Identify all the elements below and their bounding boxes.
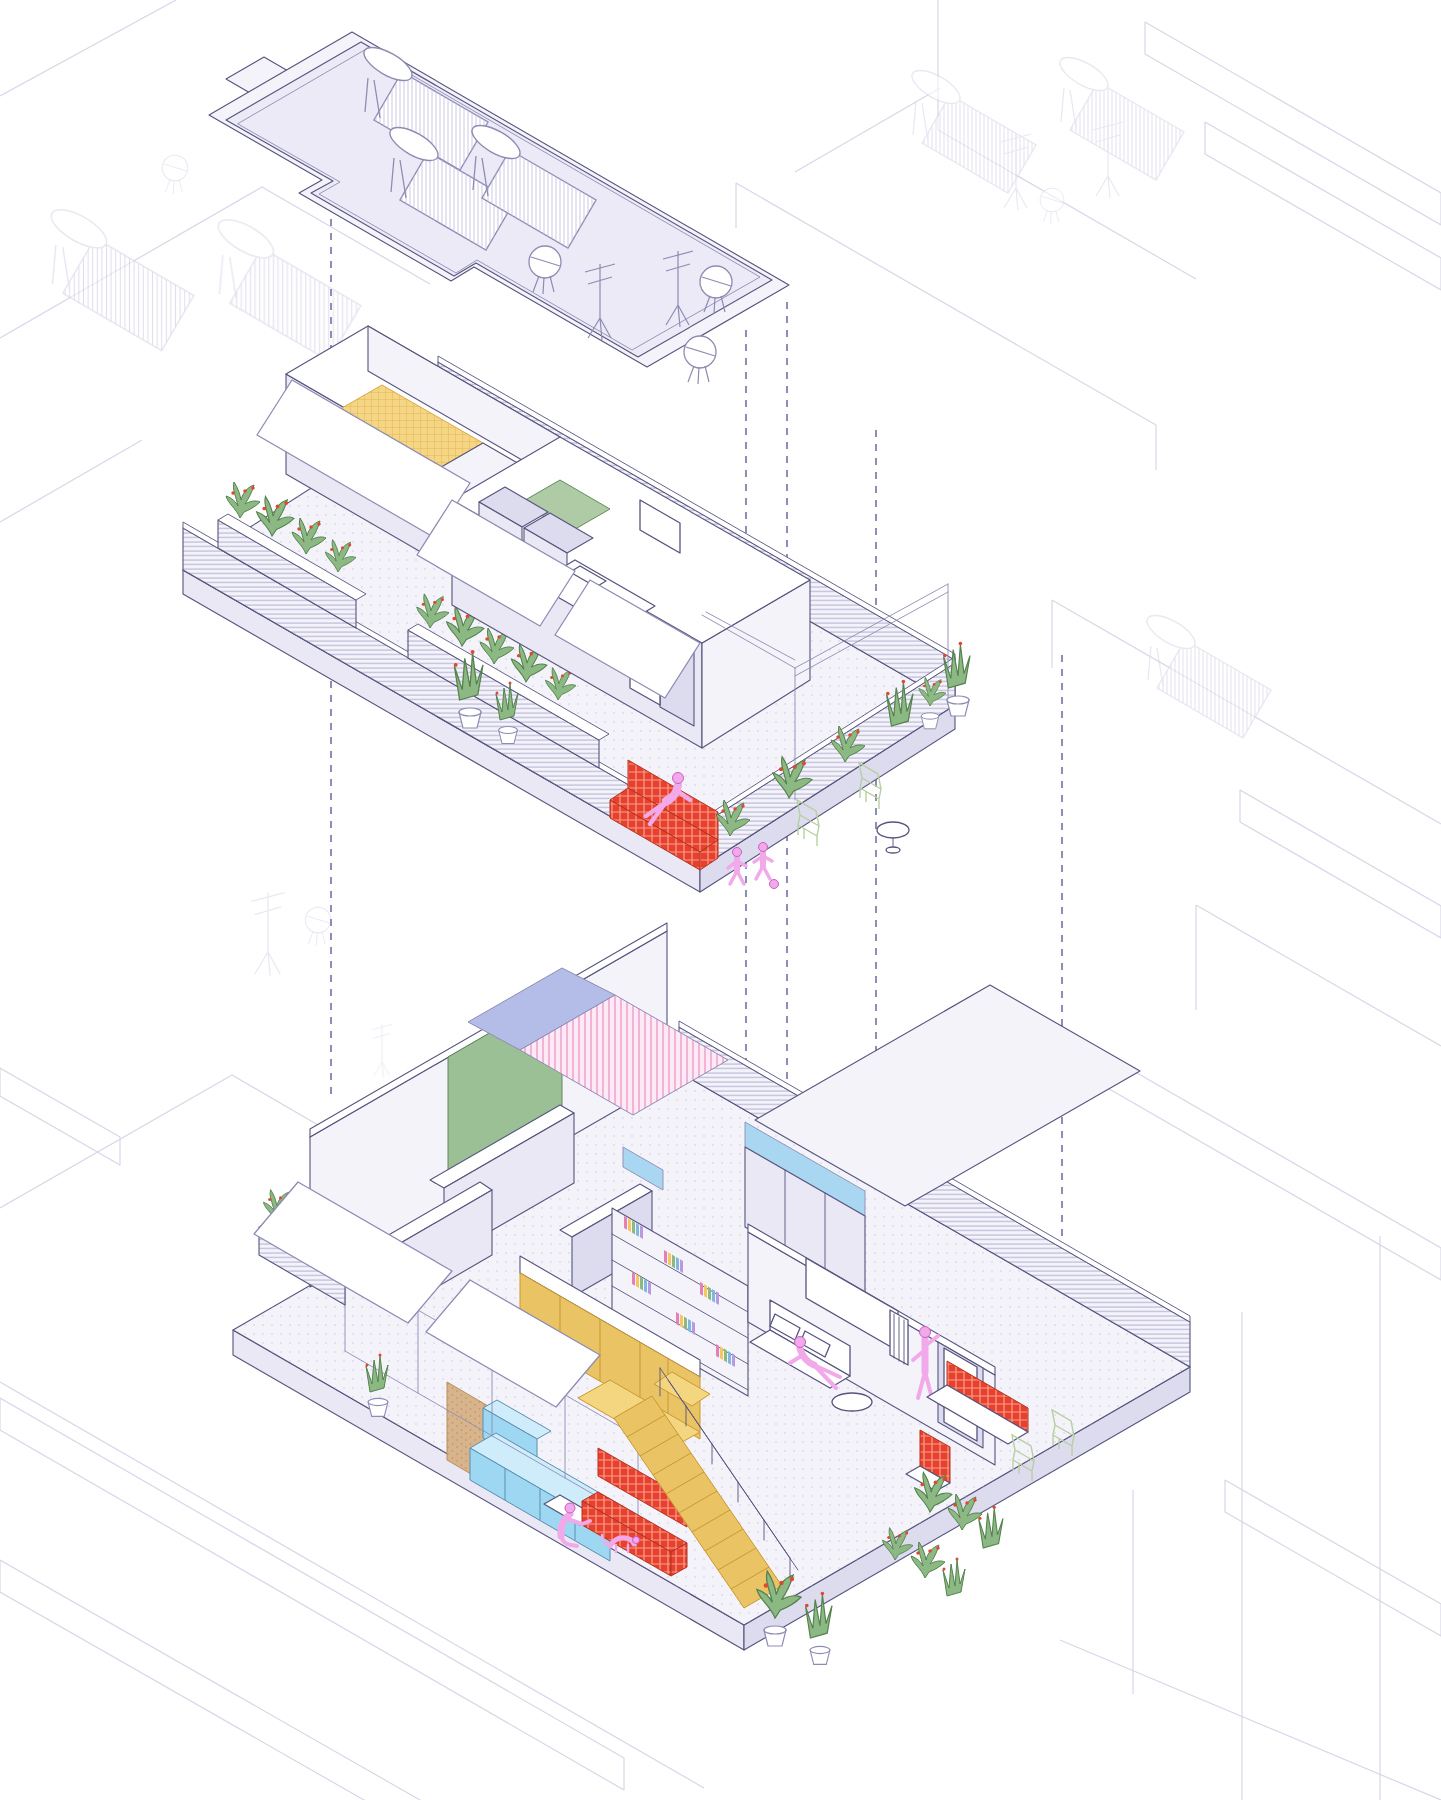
round-table	[877, 822, 909, 853]
balcony-railing	[1225, 1480, 1441, 1636]
pink-ball	[770, 880, 779, 889]
balcony-railing	[0, 1068, 120, 1165]
balcony-railing	[1205, 122, 1441, 290]
balcony-railing	[1104, 1054, 1441, 1280]
exploded-axonometric-drawing	[0, 0, 1441, 1800]
balcony-railing	[1145, 22, 1441, 225]
balcony-railing	[1240, 790, 1441, 938]
balcony-railing	[0, 1560, 420, 1800]
radiator	[890, 1310, 908, 1365]
upper-floor	[183, 326, 970, 892]
lower-floor	[233, 923, 1190, 1664]
exploded-axonometric-page	[0, 0, 1441, 1800]
coffee-table	[832, 1393, 872, 1411]
